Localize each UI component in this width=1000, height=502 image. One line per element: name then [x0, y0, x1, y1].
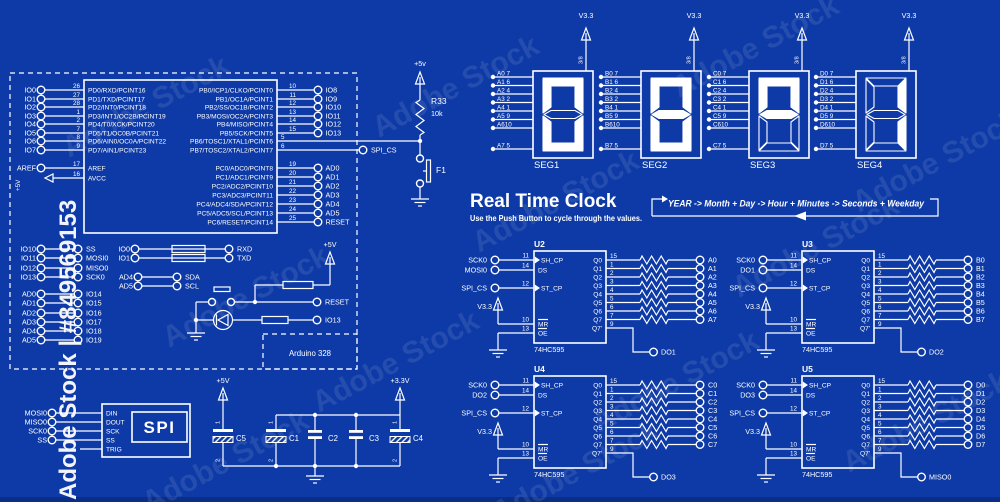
- ic-pin-name: PB7/TOSC2/XTAL2/PCINT7: [190, 148, 273, 155]
- output-terminal: [964, 256, 972, 264]
- output-terminal: [696, 273, 704, 281]
- ic-pin-name: ST_CP: [809, 411, 831, 418]
- seg-pin-label: C4 1: [713, 105, 727, 112]
- ic-pin-name: Q3: [593, 283, 602, 290]
- pin-number: 28: [73, 100, 81, 107]
- net-label-left: AD5: [22, 336, 36, 345]
- pin-number: 11: [289, 92, 296, 99]
- output-terminal: [964, 432, 972, 440]
- io13-terminal: [313, 316, 321, 324]
- pin-number: 12: [522, 281, 530, 288]
- reset-terminal: [313, 298, 321, 306]
- seg-pin-label: B3 2: [605, 96, 618, 103]
- port-terminal: [37, 95, 45, 103]
- rail-label: V3.3: [687, 11, 702, 20]
- button-terminal: [417, 155, 424, 162]
- ic-pin-name: Q0: [861, 383, 870, 390]
- part-number: 74HC595: [802, 470, 832, 479]
- rail-label: V3.3: [477, 427, 492, 436]
- output-terminal: [964, 282, 972, 290]
- cap-pin-number: 1: [393, 421, 399, 424]
- ic-pin-name: ST_CP: [541, 286, 563, 293]
- seg-pin-label: A4 1: [497, 105, 510, 112]
- port-terminal: [314, 103, 322, 111]
- cap-pin-number: 2: [393, 459, 399, 462]
- seg-pin-label: D2 4: [820, 88, 834, 95]
- pin-number: 1: [878, 262, 882, 269]
- port-label: IO4: [24, 120, 36, 129]
- ic-pin-name: Q1: [861, 266, 870, 273]
- port-label: AD1: [326, 173, 340, 182]
- cap-plate: [213, 429, 233, 432]
- pin-number: 15: [878, 253, 886, 260]
- ic-pin-name: MR: [538, 322, 548, 329]
- output-terminal: [964, 290, 972, 298]
- net-label-right: MOSI0: [86, 254, 108, 263]
- net-label-left: AD3: [22, 318, 36, 327]
- port-terminal: [37, 146, 45, 154]
- port-label: IO12: [326, 120, 342, 129]
- net-terminal: [37, 299, 45, 307]
- serial-out-terminal: [650, 473, 658, 481]
- pin-number: 15: [289, 126, 297, 133]
- port-label: RESET: [326, 218, 351, 227]
- pin-number: 5: [610, 296, 614, 303]
- spi-cs-net: SPI_CS: [371, 146, 397, 155]
- pin-number: 7: [878, 313, 882, 320]
- port-terminal: [314, 95, 322, 103]
- port-label: IO0: [24, 86, 36, 95]
- seg-pin-label: A3 2: [497, 96, 510, 103]
- ref-designator: U4: [534, 364, 545, 374]
- pin-number: 19: [289, 161, 297, 168]
- port-label: IO6: [24, 137, 36, 146]
- output-net: A7: [708, 315, 717, 324]
- schematic-canvas: V3.3 3/8 11 14 12 10 13 SH_CP DS ST_CP M…: [0, 0, 1000, 502]
- cap-plate: [390, 429, 410, 432]
- button-terminal: [417, 180, 424, 187]
- pin-number: 10: [289, 83, 297, 90]
- port-terminal: [314, 173, 322, 181]
- port-label: AD0: [326, 164, 340, 173]
- output-terminal: [696, 424, 704, 432]
- pin-number: 21: [289, 179, 297, 186]
- seg-pin-label: C3 2: [713, 96, 727, 103]
- seg-pin-label: A5 9: [497, 113, 510, 120]
- pin-number: 15: [610, 378, 618, 385]
- ic-pin-name: SCK: [106, 429, 120, 436]
- rail-label: V3.3: [902, 11, 917, 20]
- net-terminal: [37, 336, 45, 344]
- arduino-label: Arduino 328: [289, 349, 331, 358]
- output-terminal: [964, 316, 972, 324]
- seg-pin-label: B2 4: [605, 88, 618, 95]
- net-label: TXD: [237, 254, 251, 263]
- pin-number: 10: [522, 317, 530, 324]
- pin-number: 26: [73, 83, 81, 90]
- net-label: SCL: [185, 282, 199, 291]
- ref-designator: U2: [534, 239, 545, 249]
- rail-label: +5v: [414, 59, 426, 68]
- rail-label: +5V: [324, 240, 337, 249]
- stock-id-watermark: Adobe Stock | #849569153: [55, 200, 82, 500]
- net-label: SDA: [185, 273, 200, 282]
- ic-pin-name: SS: [106, 438, 115, 445]
- seg-pin-label: D610: [820, 122, 836, 129]
- spi-cs-terminal: [359, 146, 367, 154]
- port-terminal: [37, 120, 45, 128]
- seg-pin-label: C5 9: [713, 113, 727, 120]
- net-label: AD4: [119, 273, 133, 282]
- pin-number: 11: [522, 253, 529, 260]
- seg-pin-label: D4 1: [820, 105, 834, 112]
- seg-pin-label: B5 9: [605, 113, 618, 120]
- display-name: SEG2: [642, 160, 667, 171]
- pin-number: 27: [73, 92, 81, 99]
- serial-out-net: DO1: [661, 348, 676, 357]
- pin-number: 1: [76, 109, 80, 116]
- pin-number: 6: [281, 143, 285, 150]
- port-label: AD3: [326, 191, 340, 200]
- pin-number: 1: [610, 387, 614, 394]
- input-net: SCK0: [736, 381, 755, 390]
- pin-number: 12: [522, 406, 530, 413]
- aref-terminal: [37, 164, 45, 172]
- ic-pin-name: Q2: [861, 275, 870, 282]
- output-terminal: [964, 441, 972, 449]
- ic-pin-name: PB4/MISO/PCINT4: [217, 122, 274, 129]
- ic-pin-name: Q7': [860, 326, 870, 333]
- pin-number: 10: [790, 317, 798, 324]
- cap-name: C4: [413, 434, 424, 443]
- output-terminal: [696, 415, 704, 423]
- seg-pin-label: C7 5: [713, 143, 727, 150]
- net-label-left: AD1: [22, 299, 36, 308]
- display-name: SEG3: [750, 160, 775, 171]
- bus-ratio-label: 3/8: [902, 56, 908, 64]
- ic-pin-name: Q6: [861, 309, 870, 316]
- output-terminal: [964, 273, 972, 281]
- serial-out-net: MISO0: [929, 473, 951, 482]
- pin-number: 3: [878, 404, 882, 411]
- pin-number: 13: [790, 326, 798, 333]
- pin-number: 16: [73, 171, 81, 178]
- ic-pin-name: MR: [806, 322, 816, 329]
- ic-pin-name: SH_CP: [809, 383, 832, 390]
- pin-number: 4: [610, 287, 614, 294]
- ic-pin-name: Q0: [593, 383, 602, 390]
- seg-pin-label: D7 5: [820, 143, 834, 150]
- net-label: RXD: [237, 245, 252, 254]
- port-terminal: [314, 120, 322, 128]
- input-terminal: [491, 409, 499, 417]
- pin-number: 9: [610, 321, 614, 328]
- pin-number: 20: [289, 170, 297, 177]
- ic-pin-name: SH_CP: [541, 383, 564, 390]
- cap-plate: [349, 436, 363, 439]
- pin-number: 24: [289, 206, 297, 213]
- port-label: AD4: [326, 200, 340, 209]
- output-terminal: [696, 299, 704, 307]
- pin-number: 12: [790, 281, 798, 288]
- pin-number: 10: [522, 442, 530, 449]
- pin-number: 4: [878, 412, 882, 419]
- cap-plate: [349, 430, 363, 433]
- ic-pin-name: Q5: [861, 300, 870, 307]
- port-terminal: [314, 129, 322, 137]
- net-label-right: IO14: [86, 290, 102, 299]
- ic-pin-name: SH_CP: [541, 258, 564, 265]
- ic-pin-name: PB5/SCK/PCINT5: [220, 131, 273, 138]
- ic-pin-name: AVCC: [88, 176, 106, 183]
- net-label-right: IO16: [86, 309, 102, 318]
- ic-pin-name: Q3: [861, 408, 870, 415]
- input-terminal: [759, 381, 767, 389]
- pin-number: 3: [878, 279, 882, 286]
- pin-number: 13: [289, 109, 297, 116]
- pin-number: 9: [878, 321, 882, 328]
- serial-out-net: DO3: [661, 473, 676, 482]
- seg-pin-label: B610: [605, 122, 620, 129]
- ic-pin-name: Q7: [861, 317, 870, 324]
- cap-name: C2: [328, 434, 338, 443]
- ic-pin-name: MR: [538, 447, 548, 454]
- ic-pin-name: Q7: [593, 317, 602, 324]
- net-terminal: [37, 318, 45, 326]
- rail-label: V3.3: [745, 427, 760, 436]
- seg-pin-label: B4 1: [605, 105, 618, 112]
- ic-pin-name: MR: [806, 447, 816, 454]
- port-terminal: [37, 103, 45, 111]
- net-terminal: [37, 273, 45, 281]
- pin-number: 3: [610, 279, 614, 286]
- input-net: SCK0: [468, 381, 487, 390]
- input-terminal: [491, 256, 499, 264]
- ic-pin-name: ST_CP: [541, 411, 563, 418]
- pin-number: 12: [289, 100, 297, 107]
- seg-pin-label: B0 7: [605, 71, 618, 78]
- net-label: SCK0: [28, 427, 47, 436]
- pin-number: 15: [878, 378, 886, 385]
- pin-number: 5: [878, 296, 882, 303]
- pin-number: 25: [289, 215, 297, 222]
- pin-number: 6: [878, 304, 882, 311]
- pin-number: 13: [790, 451, 798, 458]
- pin-number: 2: [878, 270, 882, 277]
- ic-pin-name: Q3: [861, 283, 870, 290]
- pin-number: 15: [610, 253, 618, 260]
- seg-pin-label: B7 5: [605, 143, 618, 150]
- rail-label: V3.3: [579, 11, 594, 20]
- pin-number: 1: [878, 387, 882, 394]
- output-terminal: [964, 265, 972, 273]
- bus-ratio-label: 3/8: [795, 56, 801, 64]
- ic-pin-name: DOUT: [106, 420, 125, 427]
- ic-pin-name: PB1/OC1A/PCINT1: [215, 97, 273, 104]
- part-number: 74HC595: [802, 345, 832, 354]
- pin-number: 1: [610, 262, 614, 269]
- input-net: SPI_CS: [729, 409, 755, 418]
- net-terminal: [37, 264, 45, 272]
- net-label-right: IO18: [86, 327, 102, 336]
- rail-label: +5V: [217, 376, 230, 385]
- input-terminal: [759, 409, 767, 417]
- ic-pin-name: Q1: [593, 391, 602, 398]
- pin-number: 22: [289, 188, 297, 195]
- output-terminal: [696, 316, 704, 324]
- output-terminal: [696, 290, 704, 298]
- bus-ratio-label: 3/8: [579, 56, 585, 64]
- net-label: SS: [37, 436, 47, 445]
- net-terminal: [37, 254, 45, 262]
- port-terminal: [37, 129, 45, 137]
- pin-number: 11: [790, 378, 797, 385]
- output-terminal: [964, 299, 972, 307]
- port-label: IO13: [326, 129, 342, 138]
- input-net: SPI_CS: [461, 409, 487, 418]
- output-terminal: [696, 307, 704, 315]
- display-name: SEG1: [534, 160, 559, 171]
- ic-pin-name: ST_CP: [809, 286, 831, 293]
- net-terminal: [37, 327, 45, 335]
- ic-pin-name: DS: [538, 268, 548, 275]
- net-label: IO0: [118, 245, 130, 254]
- pin-number: 14: [522, 388, 530, 395]
- pin-number: 23: [289, 197, 297, 204]
- net-label-left: AD2: [22, 309, 36, 318]
- ic-pin-name: Q6: [593, 309, 602, 316]
- serial-out-terminal: [918, 348, 926, 356]
- seg-pin-label: D1 6: [820, 79, 834, 86]
- pin-number: 12: [790, 406, 798, 413]
- net-label-right: SCK0: [86, 273, 105, 282]
- cap-plate: [308, 436, 322, 439]
- ic-pin-name: DS: [806, 393, 816, 400]
- ic-pin-name: PC6/RESET/PCINT14: [207, 220, 273, 227]
- display-name: SEG4: [857, 160, 882, 171]
- port-label: AD2: [326, 182, 340, 191]
- pin-number: 13: [522, 451, 530, 458]
- io13-net: IO13: [325, 316, 341, 325]
- net-label-left: IO12: [20, 264, 36, 273]
- ic-pin-name: Q1: [593, 266, 602, 273]
- pin-number: 14: [522, 263, 530, 270]
- output-net: B7: [976, 315, 985, 324]
- fuse-name: F1: [436, 165, 446, 175]
- aref-port: AREF: [17, 164, 37, 173]
- cap-name: C3: [369, 434, 379, 443]
- port-terminal: [37, 112, 45, 120]
- ic-pin-name: OE: [806, 456, 816, 463]
- ic-pin-name: PC5/ADC5/SCL/PCINT13: [197, 211, 273, 218]
- seg-pin-label: A7 5: [497, 143, 510, 150]
- net-label-right: IO19: [86, 336, 102, 345]
- net-label-left: IO11: [21, 254, 36, 263]
- ic-pin-name: PB3/MOSI/OC2A/PCINT3: [197, 114, 274, 121]
- pin-number: 2: [878, 395, 882, 402]
- ic-pin-name: AREF: [88, 166, 106, 173]
- seg-pin-label: D3 2: [820, 96, 834, 103]
- port-label: IO7: [24, 146, 36, 155]
- port-terminal: [314, 218, 322, 226]
- seg-pin-label: C610: [713, 122, 729, 129]
- input-terminal: [491, 266, 499, 274]
- net-label: MOSI0: [25, 409, 47, 418]
- serial-out-net: DO2: [929, 348, 944, 357]
- net-label-right: SS: [86, 245, 96, 254]
- spi-label: SPI: [144, 418, 176, 437]
- port-terminal: [314, 86, 322, 94]
- output-terminal: [696, 282, 704, 290]
- input-net: SPI_CS: [461, 284, 487, 293]
- ic-pin-name: PC0/ADC0/PCINT8: [215, 166, 273, 173]
- output-terminal: [696, 265, 704, 273]
- ic-pin-name: Q7': [592, 326, 602, 333]
- avcc-rail-label: +5V: [15, 179, 22, 191]
- port-terminal: [314, 112, 322, 120]
- pin-number: 5: [281, 134, 285, 141]
- net-label-left: IO10: [20, 245, 36, 254]
- input-terminal: [759, 391, 767, 399]
- output-net: D7: [976, 440, 985, 449]
- seg-pin-label: A610: [497, 122, 512, 129]
- part-number: 74HC595: [534, 345, 564, 354]
- ic-pin-name: Q4: [861, 292, 870, 299]
- schematic-stage: V3.3 3/8 11 14 12 10 13 SH_CP DS ST_CP M…: [0, 0, 1000, 502]
- net-label-right: IO17: [86, 318, 102, 327]
- ic-pin-name: OE: [806, 331, 816, 338]
- rail-label: V3.3: [477, 302, 492, 311]
- net-label-right: MISO0: [86, 264, 108, 273]
- output-net: C7: [708, 440, 717, 449]
- output-terminal: [964, 307, 972, 315]
- serial-out-terminal: [650, 348, 658, 356]
- cap-pin-number: 2: [269, 459, 275, 462]
- net-terminal: [37, 290, 45, 298]
- input-terminal: [491, 284, 499, 292]
- input-net: DO3: [740, 391, 755, 400]
- reset-net: RESET: [325, 298, 350, 307]
- ic-pin-name: TRIG: [106, 447, 122, 454]
- input-net: MOSI0: [465, 266, 487, 275]
- ic-pin-name: Q0: [593, 258, 602, 265]
- ic-pin-name: PB2/SS/OC1B/PCINT2: [205, 105, 273, 112]
- net-label-left: AD0: [22, 290, 36, 299]
- port-terminal: [314, 164, 322, 172]
- port-label: AD5: [326, 209, 340, 218]
- net-label: AD5: [119, 282, 133, 291]
- seg-pin-label: D0 7: [820, 71, 834, 78]
- pin-number: 14: [289, 117, 297, 124]
- ic-pin-name: PB6/TOSC1/XTAL1/PCINT6: [190, 139, 273, 146]
- ic-pin-name: PC3/ADC3/PCINT11: [212, 193, 273, 200]
- port-label: IO8: [326, 86, 338, 95]
- input-terminal: [491, 381, 499, 389]
- ic-pin-name: Q0: [861, 258, 870, 265]
- net-label-left: AD4: [22, 327, 36, 336]
- ic-pin-name: Q2: [861, 400, 870, 407]
- net-label: IO1: [118, 254, 130, 263]
- ic-pin-name: Q4: [861, 417, 870, 424]
- ic-pin-name: Q4: [593, 292, 602, 299]
- net-label-right: IO15: [86, 299, 102, 308]
- pin-number: 6: [610, 304, 614, 311]
- cap-polarized-plate: [390, 437, 410, 443]
- output-terminal: [696, 407, 704, 415]
- pin-number: 11: [522, 378, 529, 385]
- pin-number: 10: [790, 442, 798, 449]
- input-terminal: [491, 391, 499, 399]
